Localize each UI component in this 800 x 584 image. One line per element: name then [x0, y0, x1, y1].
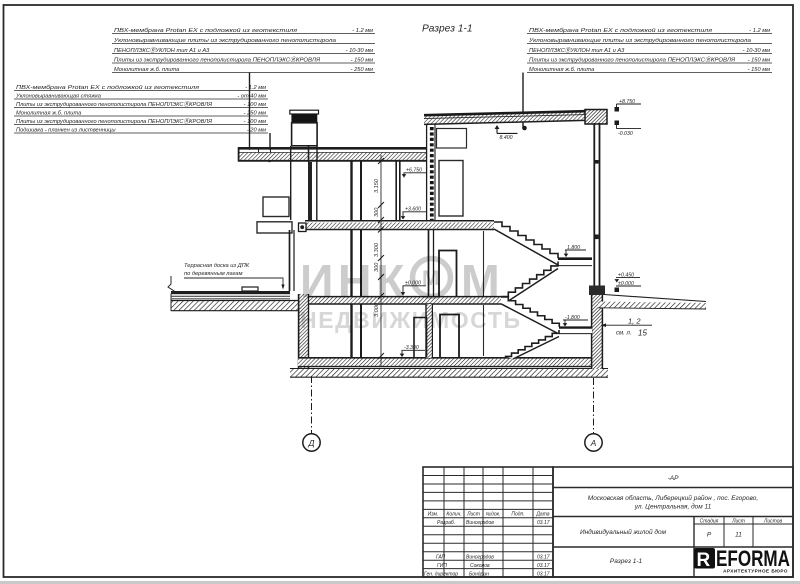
svg-text:Уклоновыравнивающие плиты из э: Уклоновыравнивающие плиты из экструдиров… [113, 38, 336, 44]
svg-text:Монолитная ж.б. плита: Монолитная ж.б. плита [16, 111, 81, 117]
svg-text:- 1.2 мм: - 1.2 мм [352, 28, 373, 34]
svg-text:- 10-30 мм: - 10-30 мм [346, 48, 373, 54]
svg-text:Монолитная ж.б. плита: Монолитная ж.б. плита [114, 67, 179, 73]
svg-text:Изм.: Изм. [428, 512, 439, 518]
svg-text:03.17: 03.17 [537, 563, 550, 569]
svg-text:ПВХ-мембрана Protan EX с подло: ПВХ-мембрана Protan EX с подложкой из ге… [529, 27, 712, 34]
svg-text:Д: Д [308, 438, 315, 448]
svg-text:Разрез 1-1: Разрез 1-1 [610, 558, 643, 565]
svg-text:- 100 мм: - 100 мм [244, 119, 266, 125]
svg-text:EFORMA: EFORMA [716, 546, 790, 571]
svg-text:8.400: 8.400 [500, 135, 513, 141]
svg-text:Виноградов: Виноградов [466, 520, 494, 526]
svg-text:Бондрин: Бондрин [469, 572, 489, 578]
svg-text:300: 300 [374, 207, 380, 217]
svg-text:Ген. директор: Ген. директор [424, 572, 458, 578]
svg-text:11: 11 [735, 532, 742, 539]
svg-text:Монолитная ж.б. плита: Монолитная ж.б. плита [529, 67, 594, 73]
svg-text:R: R [697, 550, 711, 571]
svg-text:Разраб.: Разраб. [437, 520, 455, 526]
svg-text:ПЕНОПЛЭКСⓇУКЛОН тип А1 и А3: ПЕНОПЛЭКСⓇУКЛОН тип А1 и А3 [529, 47, 625, 54]
svg-text:- 1.2 мм: - 1.2 мм [749, 28, 770, 34]
svg-text:Плиты из экструдированного пен: Плиты из экструдированного пенополистиро… [114, 57, 320, 64]
svg-text:А: А [590, 438, 597, 448]
svg-text:- 250 мм: - 250 мм [351, 67, 373, 73]
svg-text:Уклоновыравнивающие плиты из э: Уклоновыравнивающие плиты из экструдиров… [528, 38, 751, 44]
svg-text:ГАП: ГАП [436, 555, 446, 561]
svg-text:- 1.2 мм: - 1.2 мм [245, 85, 266, 91]
svg-text:см. л.: см. л. [616, 331, 632, 337]
svg-text:Виноградов: Виноградов [466, 555, 494, 561]
svg-text:Подшивка - планкен из лиственн: Подшивка - планкен из лиственницы [16, 128, 116, 134]
svg-text:НЕДВИЖИМОСТЬ: НЕДВИЖИМОСТЬ [300, 307, 522, 333]
svg-text:Индивидуальный жилой дом: Индивидуальный жилой дом [580, 528, 667, 536]
svg-text:Московская область, Либерецкий: Московская область, Либерецкий район , п… [588, 494, 759, 502]
svg-text:М: М [422, 267, 440, 290]
svg-text:-0.030: -0.030 [618, 131, 633, 137]
svg-text:- 100 мм: - 100 мм [244, 102, 266, 108]
svg-text:ПВХ-мембрана Protan EX с подло: ПВХ-мембрана Protan EX с подложкой из ге… [16, 84, 199, 91]
svg-text:- 150 мм: - 150 мм [351, 58, 373, 64]
svg-text:Лист: Лист [466, 512, 480, 518]
svg-text:-АР: -АР [668, 475, 680, 482]
svg-text:ПЕНОПЛЭКСⓇУКЛОН тип А1 и А3: ПЕНОПЛЭКСⓇУКЛОН тип А1 и А3 [114, 47, 210, 54]
svg-text:Уклоновыравнивающая стяжка: Уклоновыравнивающая стяжка [15, 94, 101, 100]
svg-text:03.17: 03.17 [537, 520, 550, 526]
svg-text:Соколов: Соколов [470, 563, 490, 569]
svg-text:15: 15 [638, 329, 647, 338]
svg-text:Подп.: Подп. [511, 512, 524, 518]
svg-text:ГИП: ГИП [437, 563, 447, 569]
svg-text:Дата: Дата [535, 512, 549, 518]
svg-text:Плиты из экструдированного пен: Плиты из экструдированного пенополистиро… [16, 101, 212, 108]
svg-text:Колич.: Колич. [446, 512, 461, 518]
svg-text:- 150 мм: - 150 мм [748, 67, 770, 73]
svg-text:Плиты из экструдированного пен: Плиты из экструдированного пенополистиро… [16, 118, 212, 125]
svg-text:Разрез 1-1: Разрез 1-1 [422, 23, 472, 34]
svg-text:по деревянным лагам: по деревянным лагам [184, 271, 243, 277]
svg-text:3.150: 3.150 [374, 178, 380, 193]
svg-text:М: М [461, 255, 500, 307]
svg-text:ПВХ-мембрана Protan EX с подло: ПВХ-мембрана Protan EX с подложкой из ге… [114, 27, 297, 34]
svg-text:- от 40 мм: - от 40 мм [237, 94, 266, 100]
svg-text:03.17: 03.17 [537, 572, 550, 578]
svg-text:№док.: №док. [486, 512, 501, 518]
svg-text:Плиты из экструдированного пен: Плиты из экструдированного пенополистиро… [529, 57, 735, 64]
svg-text:ИНК: ИНК [300, 255, 409, 307]
svg-text:Лист: Лист [731, 519, 745, 525]
svg-text:1, 2: 1, 2 [628, 317, 641, 326]
svg-text:Р: Р [707, 532, 712, 539]
svg-text:- 250 мм: - 250 мм [244, 111, 266, 117]
svg-text:- 150 мм: - 150 мм [748, 58, 770, 64]
svg-text:ул. Центральная, дом 11: ул. Центральная, дом 11 [634, 503, 712, 511]
svg-text:Листов: Листов [763, 519, 783, 525]
svg-text:Террасная доска из ДПК: Террасная доска из ДПК [184, 263, 250, 269]
svg-text:Стадия: Стадия [700, 519, 719, 525]
svg-text:03.17: 03.17 [537, 555, 550, 561]
svg-text:- 10-30 мм: - 10-30 мм [743, 48, 770, 54]
svg-text:АРХИТЕКТУРНОЕ БЮРО: АРХИТЕКТУРНОЕ БЮРО [723, 569, 788, 574]
